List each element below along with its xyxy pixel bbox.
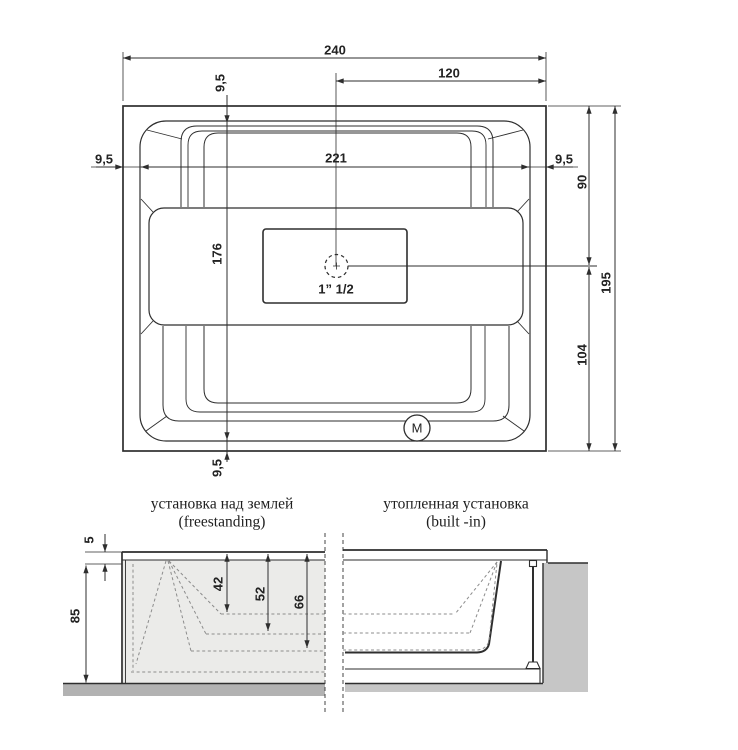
plan-dimensions [91,52,621,462]
tub-hidden-profile-right [343,562,497,650]
dim-rim-top-label: 9,5 [214,74,227,92]
drain-center-mark [333,263,340,270]
dim-drain-from-top-label: 90 [576,175,589,189]
dim-rim-thickness-label: 5 [83,536,96,543]
dim-inner-length-label: 176 [211,243,224,265]
freestanding-title-ru: установка над землей [151,496,294,512]
dim-rim-left-label: 9,5 [95,153,113,166]
base-plate [345,669,540,683]
section-freestanding [63,533,343,712]
section-built-in [343,550,588,692]
height-dimensions [85,534,122,683]
tub-wall-section [345,561,501,653]
dim-total-height-label: 85 [69,609,82,623]
dim-rim-right-label: 9,5 [555,153,573,166]
built-in-title-ru: утопленная установка [383,496,528,512]
dim-overall-length-label: 195 [600,272,613,294]
support-leg [526,561,540,669]
built-in-title-en: (built -in) [426,514,486,530]
dim-depth-c-label: 66 [293,595,306,609]
motor-label: M [412,422,423,435]
technical-drawing-page: 240 120 9,5 221 9,5 9,5 176 9,5 90 195 1… [0,0,738,750]
floor-left [63,684,325,696]
dim-overall-width-label: 240 [324,44,346,57]
dim-inner-width-label: 221 [325,152,347,165]
break-lines [325,533,343,712]
drawing-linework [0,0,738,750]
dim-drain-from-bottom-label: 104 [576,344,589,366]
drain-size-label: 1” 1/2 [318,283,353,296]
plan-bottom-band [163,326,509,421]
dim-depth-a-label: 42 [212,577,225,591]
dim-center-to-right-label: 120 [438,67,460,80]
dim-rim-bottom-label: 9,5 [211,459,224,477]
dim-depth-b-label: 52 [254,587,267,601]
freestanding-title-en: (freestanding) [179,514,266,530]
